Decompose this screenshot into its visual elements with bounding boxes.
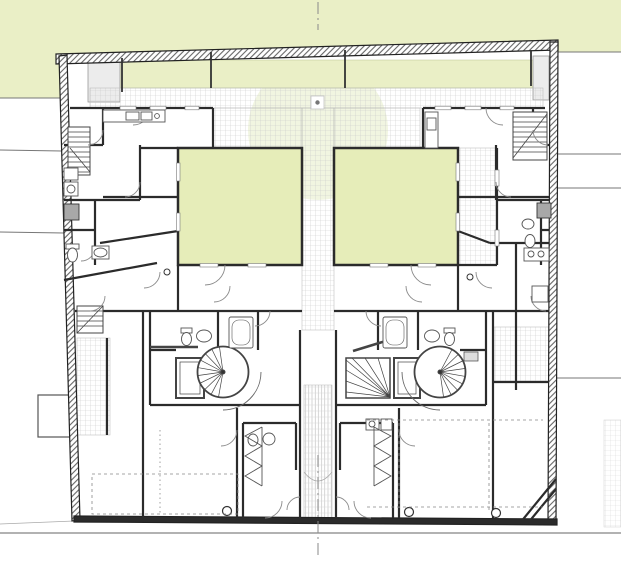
right-neighbor-terrace [604,420,621,527]
spiral-center-post [438,370,442,374]
appliance [532,286,548,302]
window [200,264,218,268]
washbasin [263,433,275,445]
tiling-left-court [213,108,302,148]
column [492,509,501,518]
tiling-central-path [302,108,334,330]
window [495,170,499,186]
boundary-wall-right [548,42,558,523]
toilet [68,248,78,262]
window [465,106,481,110]
column-small [164,269,170,275]
window [418,264,436,268]
kitchen-sink [126,112,139,120]
window [120,106,136,110]
laundry-stack-left [64,168,78,196]
hob-burner [155,114,160,119]
tiling-right-terrace [494,327,549,382]
kitchen-sink [427,118,436,130]
window [500,106,514,110]
window [177,163,181,181]
window [495,230,499,246]
floor-plan-canvas [0,0,621,561]
window [435,106,451,110]
left-annex-rectangle [38,395,72,437]
window [185,106,199,110]
tiling-right-court [334,108,420,148]
window [177,213,181,231]
tiling-right-strip [458,148,497,265]
toilet [182,333,192,346]
toilet [248,434,258,446]
spiral-side-block [464,352,478,361]
right-winder-stair [346,358,390,398]
axis-marker-dot [315,100,319,104]
courtyard-square-left [178,148,302,265]
exterior-steps-left [77,306,103,333]
washbasin [522,219,534,229]
courtyard-square-right [334,148,458,265]
washbasin [425,330,440,342]
window [456,213,460,231]
washbasin [94,248,107,257]
window [456,163,460,181]
kitchen-counter-right-top [425,112,438,148]
kitchen-counter-left [103,110,165,122]
shower-stall-left [64,204,79,220]
column [405,508,414,517]
planting-bed-strip [90,60,545,88]
window [248,264,266,268]
washbasin [197,330,212,342]
column-small [467,274,473,280]
kitchen-sink [141,112,152,120]
tiling-left-terrace [77,338,110,435]
toilet [525,235,535,248]
spiral-center-post [221,370,225,374]
tiling-entry-path [304,385,332,518]
appliances-bottom-right [366,419,392,430]
shower-stall-right [537,203,551,218]
toilet [445,333,455,346]
floor-plan-drawing [0,0,621,561]
window [150,106,166,110]
axis-marker [311,96,324,109]
window [370,264,388,268]
right-top-stair [513,112,547,160]
